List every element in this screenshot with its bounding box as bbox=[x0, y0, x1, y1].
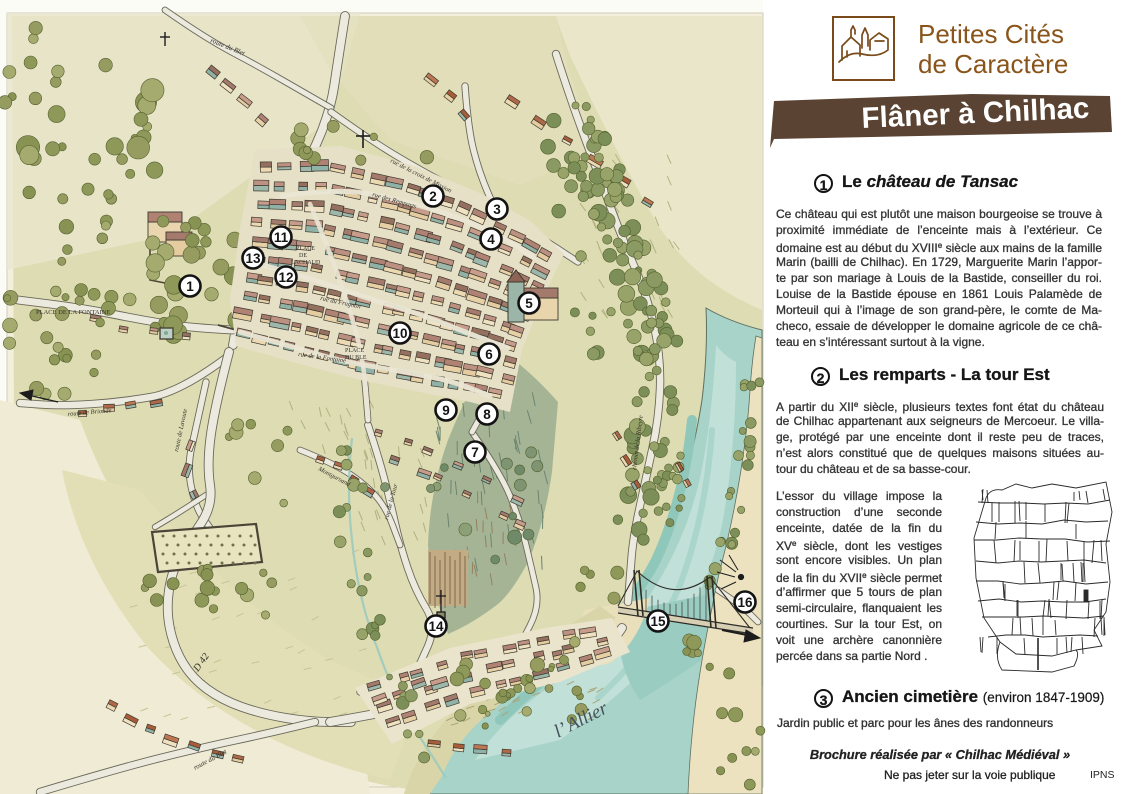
svg-text:2: 2 bbox=[429, 189, 437, 204]
svg-text:LACHAUD: LACHAUD bbox=[291, 260, 321, 266]
svg-text:11: 11 bbox=[274, 230, 289, 245]
svg-text:1: 1 bbox=[186, 279, 194, 294]
svg-text:16: 16 bbox=[737, 595, 753, 610]
svg-text:14: 14 bbox=[428, 619, 444, 634]
svg-text:4: 4 bbox=[487, 232, 495, 247]
svg-text:7: 7 bbox=[471, 445, 479, 460]
svg-text:PLACE: PLACE bbox=[345, 348, 364, 354]
svg-text:8: 8 bbox=[483, 407, 491, 422]
svg-text:PLACE DE LA FONTAINE: PLACE DE LA FONTAINE bbox=[36, 309, 110, 316]
svg-text:5: 5 bbox=[525, 296, 533, 311]
svg-text:DE: DE bbox=[299, 253, 307, 259]
svg-text:9: 9 bbox=[442, 403, 450, 418]
svg-text:6: 6 bbox=[485, 347, 493, 362]
svg-text:13: 13 bbox=[245, 251, 261, 266]
svg-text:15: 15 bbox=[650, 614, 666, 629]
svg-text:12: 12 bbox=[278, 270, 293, 285]
svg-text:10: 10 bbox=[392, 326, 407, 341]
svg-text:DU BLE: DU BLE bbox=[345, 355, 367, 361]
svg-text:PLACE: PLACE bbox=[296, 246, 315, 252]
svg-text:3: 3 bbox=[493, 202, 501, 217]
